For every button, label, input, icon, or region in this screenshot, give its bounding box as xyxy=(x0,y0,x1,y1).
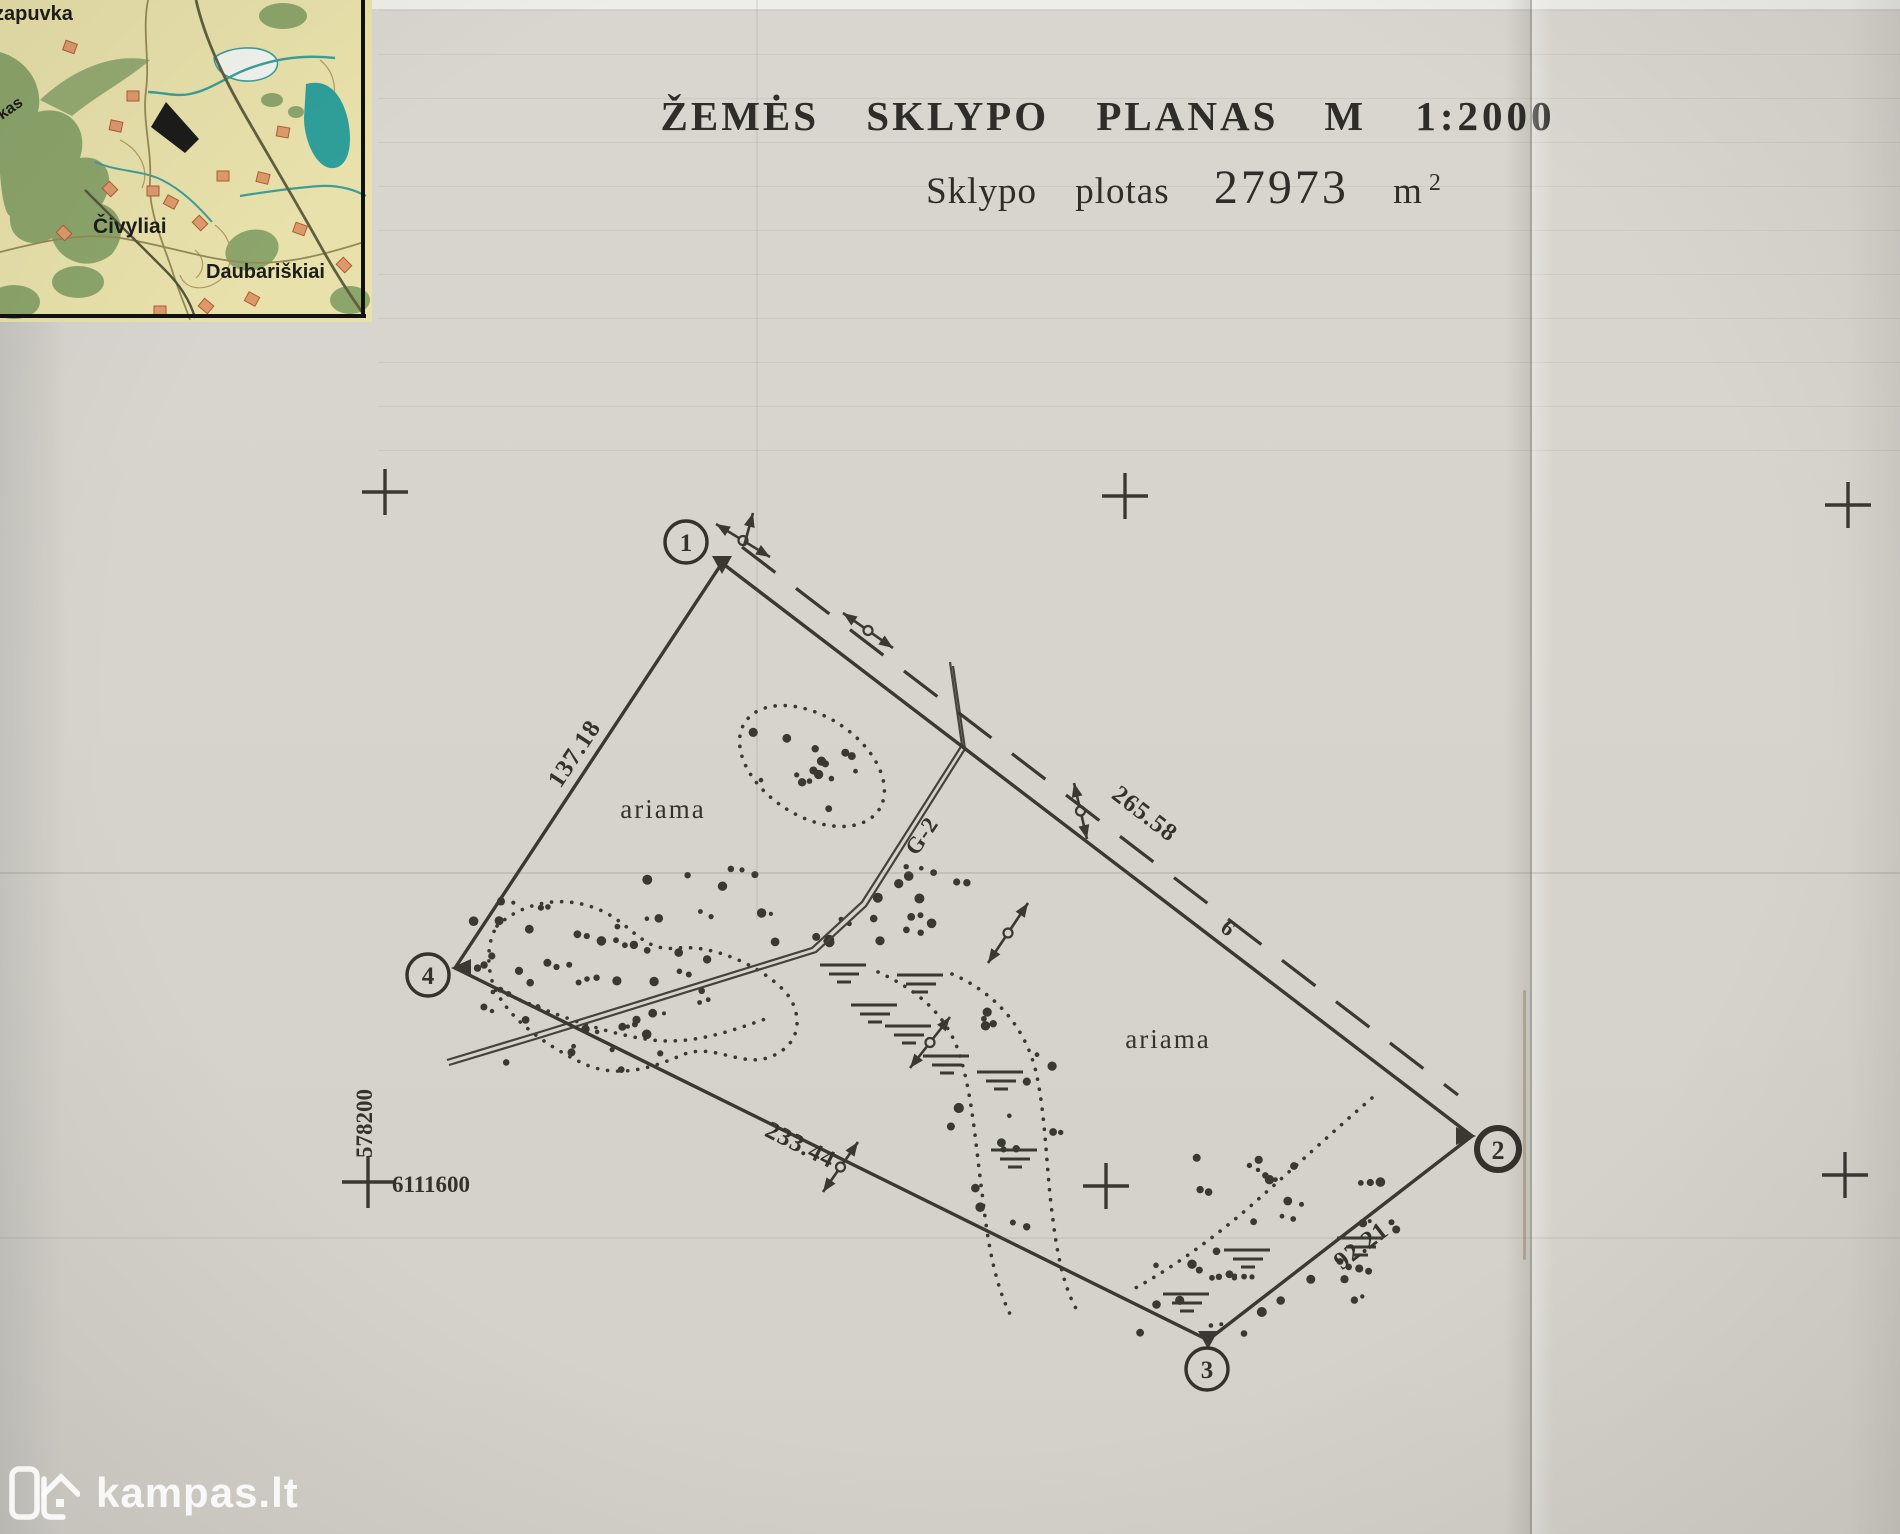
point-label-1: 1 xyxy=(680,530,693,557)
dimension-1-2: 265.58 xyxy=(1107,781,1183,848)
paper-crease-horizontal-2 xyxy=(0,1237,1900,1239)
paper-fold-stain xyxy=(1523,990,1526,1260)
paper-crease-horizontal-1 xyxy=(0,872,1900,874)
land-use-left: ariama xyxy=(620,794,705,824)
dotted-contours xyxy=(489,680,1372,1314)
kampas-logo-icon xyxy=(8,1462,80,1524)
paper-crease-vertical xyxy=(756,0,758,920)
grid-easting-label: 578200 xyxy=(352,1089,377,1158)
paper-fold-highlight xyxy=(1532,0,1554,1534)
ditch-label: G-2 xyxy=(900,812,943,859)
point-label-3: 3 xyxy=(1201,1357,1214,1384)
watermark-text: kampas.lt xyxy=(96,1469,299,1517)
plot-plan-drawing: 1 2 3 4 137.18 265.58 92.21 233.44 ariam… xyxy=(0,0,1900,1534)
boundary-road-dashed xyxy=(742,547,1458,1095)
paper-fold-shadow xyxy=(1505,0,1532,1534)
dimension-3-4: 233.44 xyxy=(761,1117,840,1174)
vertex-marker-3 xyxy=(1198,1331,1218,1349)
grid-northing-label: 6111600 xyxy=(392,1172,470,1197)
photo-right-shadow xyxy=(1845,0,1900,1534)
watermark: kampas.lt xyxy=(8,1462,299,1524)
scanned-plan-photo: zapuvka Čivyliai Daubariškiai kas ŽEMĖS … xyxy=(0,0,1900,1534)
land-use-right: ariama xyxy=(1125,1024,1210,1054)
point-label-2: 2 xyxy=(1492,1136,1505,1165)
plot-boundary xyxy=(451,556,1476,1349)
point-label-4: 4 xyxy=(422,963,435,990)
